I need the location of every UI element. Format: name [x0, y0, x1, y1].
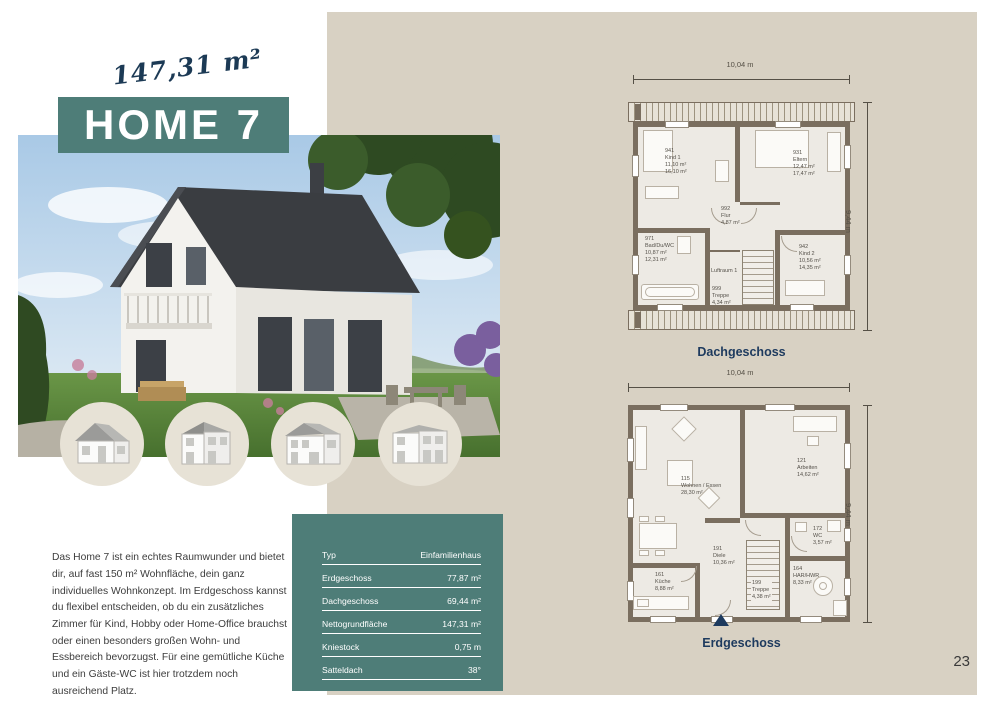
roof-overhang-hatch	[628, 102, 855, 122]
window	[775, 121, 801, 128]
window	[632, 255, 639, 275]
spec-value: 77,87 m²	[447, 573, 481, 583]
handwritten-area-label: 147,31 m²	[111, 42, 273, 90]
window	[844, 145, 851, 169]
floor-plan-title: Dachgeschoss	[615, 345, 868, 359]
page-title: HOME 7	[84, 101, 263, 149]
window	[765, 404, 795, 411]
dimension-line	[867, 405, 868, 622]
table-row: TypEinfamilienhaus	[322, 542, 481, 565]
title-banner: HOME 7	[58, 97, 289, 153]
width-dimension-label: 10,04 m	[615, 368, 865, 377]
spec-value: 38°	[468, 665, 481, 675]
window	[650, 616, 676, 623]
window	[844, 255, 851, 275]
spec-label: Typ	[322, 550, 336, 560]
wide-gable-house-icon	[271, 402, 355, 486]
room-label-diele: 191Diele 10,36 m²	[713, 546, 735, 567]
window	[665, 121, 689, 128]
window	[844, 528, 851, 542]
room-label-wohnen-essen: 115Wohnen / Essen 28,30 m²	[681, 476, 721, 497]
room-label-treppe: 199Treppe 4,38 m²	[751, 580, 772, 601]
floor-plan-title: Erdgeschoss	[615, 636, 868, 650]
spec-label: Satteldach	[322, 665, 363, 675]
room-label-kueche: 161Küche 8,88 m²	[655, 572, 674, 593]
window	[844, 578, 851, 596]
table-row: Erdgeschoss77,87 m²	[322, 565, 481, 588]
window	[627, 438, 634, 462]
table-row: Dachgeschoss69,44 m²	[322, 588, 481, 611]
table-row: Kniestock0,75 m	[322, 634, 481, 657]
room-label-flur: 992Flur 4,87 m²	[721, 206, 740, 227]
spec-label: Dachgeschoss	[322, 596, 378, 606]
dimension-line	[633, 79, 850, 80]
description-text: Das Home 7 ist ein echtes Raumwunder und…	[52, 550, 292, 700]
terrace-door	[660, 404, 688, 411]
room-label-kind1: 941Kind 1 11,10 m²16,10 m²	[665, 148, 687, 177]
room-label-eltern: 931Eltern 12,47 m²17,47 m²	[793, 150, 815, 179]
spec-label: Kniestock	[322, 642, 359, 652]
room-label-arbeiten: 121Arbeiten 14,62 m²	[797, 458, 819, 479]
window	[844, 443, 851, 469]
entrance-marker-icon	[713, 614, 729, 626]
dimension-line	[628, 387, 850, 388]
spec-label: Nettogrundfläche	[322, 619, 387, 629]
height-dimension-label: 9,44 m	[844, 210, 853, 233]
two-storey-house-icon	[165, 402, 249, 486]
roof-overhang-hatch	[628, 310, 855, 330]
room-label-har-hwr: 164HAR/HWR 8,33 m²	[793, 566, 819, 587]
staircase	[742, 250, 774, 305]
desk	[793, 416, 837, 432]
brochure-page: 147,31 m² HOME 7	[0, 0, 1000, 708]
window	[627, 498, 634, 518]
spec-value: 147,31 m²	[442, 619, 481, 629]
table-row: Nettogrundfläche147,31 m²	[322, 611, 481, 634]
room-label-luftraum: Luftraum 1	[711, 268, 737, 275]
gable-house-icon	[60, 402, 144, 486]
spec-label: Erdgeschoss	[322, 573, 372, 583]
window	[657, 304, 683, 311]
height-dimension-label: 9,44 m	[844, 503, 853, 526]
width-dimension-label: 10,04 m	[615, 60, 865, 69]
window	[632, 155, 639, 177]
room-label-bad: 971Bad/Du/WC 10,87 m²12,31 m²	[645, 236, 674, 265]
spec-value: 69,44 m²	[447, 596, 481, 606]
erdgeschoss-floor-plan: 10,04 m	[615, 368, 900, 668]
wc-fixture	[795, 522, 807, 532]
dimension-line	[867, 102, 868, 330]
spec-table: TypEinfamilienhaus Erdgeschoss77,87 m² D…	[292, 514, 503, 691]
spec-value: Einfamilienhaus	[420, 550, 481, 560]
window	[800, 616, 822, 623]
spec-value: 0,75 m	[455, 642, 481, 652]
page-number: 23	[940, 653, 970, 670]
flat-roof-house-icon	[378, 402, 462, 486]
room-label-kind2: 942Kind 2 10,56 m²14,35 m²	[799, 244, 821, 273]
dachgeschoss-floor-plan: 10,04 m	[615, 60, 900, 365]
window	[790, 304, 814, 311]
room-label-treppe: 999Treppe 4,34 m²	[712, 286, 731, 307]
room-label-wc: 172WC 3,57 m²	[813, 526, 832, 547]
table-row: Satteldach38°	[322, 657, 481, 680]
